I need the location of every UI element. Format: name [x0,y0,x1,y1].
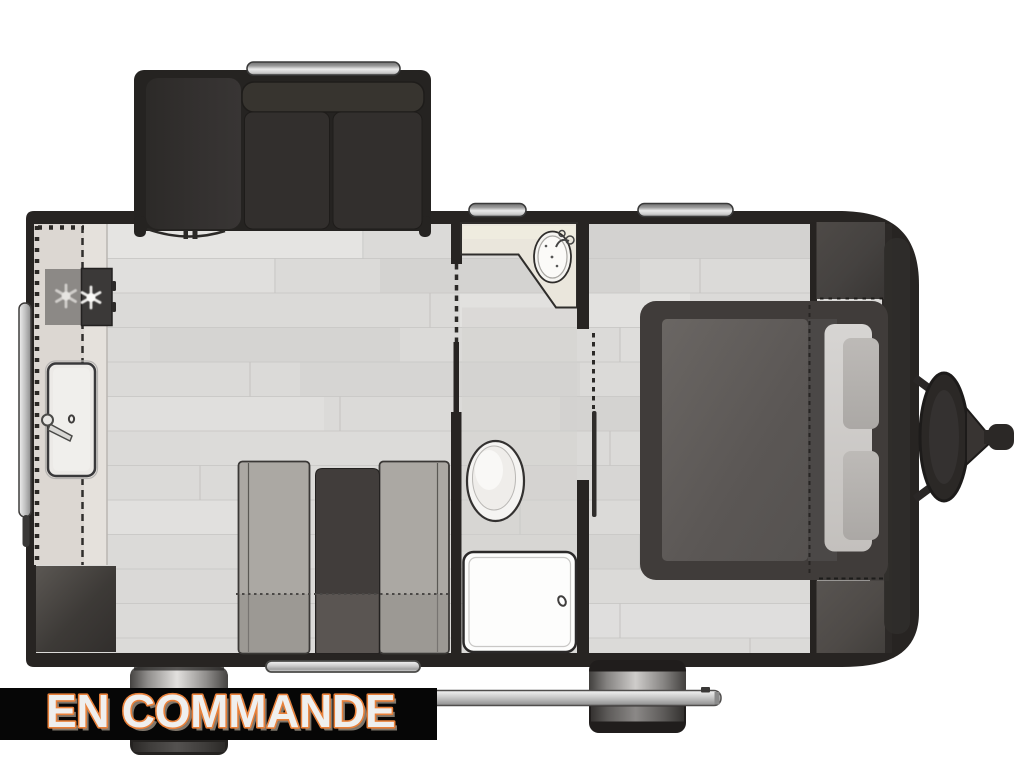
svg-text:EN COMMANDE: EN COMMANDE [46,685,395,737]
